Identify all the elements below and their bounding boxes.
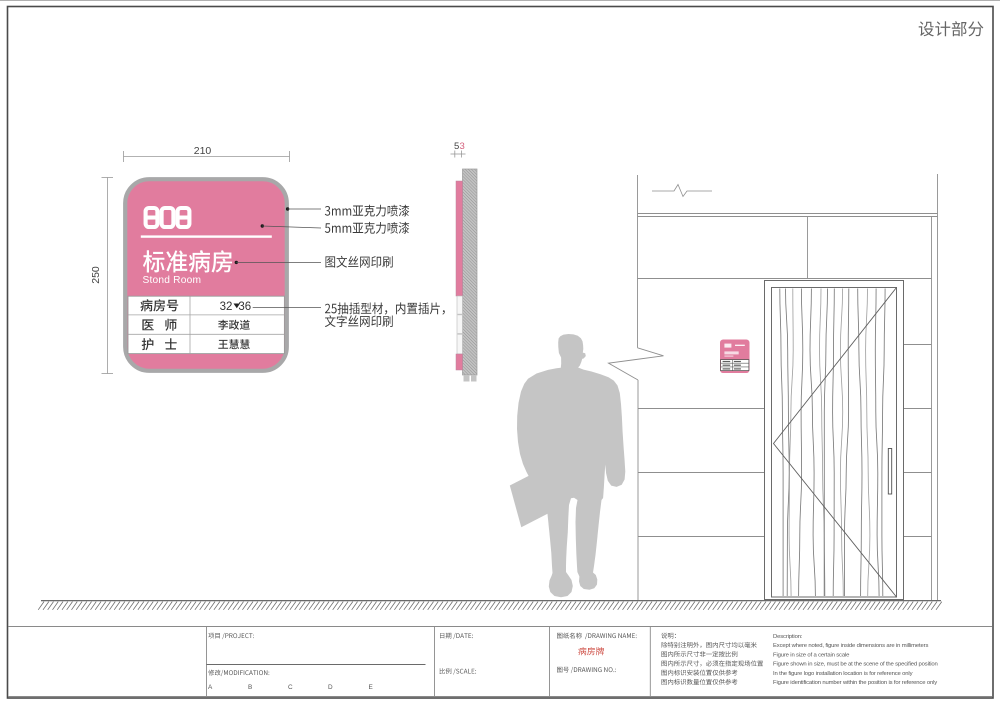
svg-text:32: 32 [220, 301, 233, 313]
svg-text:Figure identification number w: Figure identification number within the … [773, 680, 937, 686]
svg-text:B: B [248, 684, 252, 691]
svg-text:E: E [369, 684, 373, 691]
svg-text:5: 5 [454, 141, 459, 152]
svg-text:36: 36 [238, 301, 251, 313]
svg-text:Figure shown in size, must be: Figure shown in size, must be at the sce… [773, 662, 938, 668]
svg-text:210: 210 [194, 145, 212, 157]
svg-text:Figure in size of a certain sc: Figure in size of a certain scale [773, 652, 850, 658]
svg-text:3: 3 [460, 141, 465, 152]
svg-text:In the figure logo installatio: In the figure logo installation location… [773, 671, 913, 677]
svg-text:Description:: Description: [773, 634, 803, 640]
svg-text:D: D [328, 684, 333, 691]
svg-text:250: 250 [90, 266, 102, 284]
svg-text:A: A [208, 684, 213, 691]
svg-text:Stond Room: Stond Room [143, 275, 202, 286]
svg-text:Except where noted, figure ins: Except where noted, figure inside dimens… [773, 643, 928, 649]
svg-text:C: C [288, 684, 293, 691]
